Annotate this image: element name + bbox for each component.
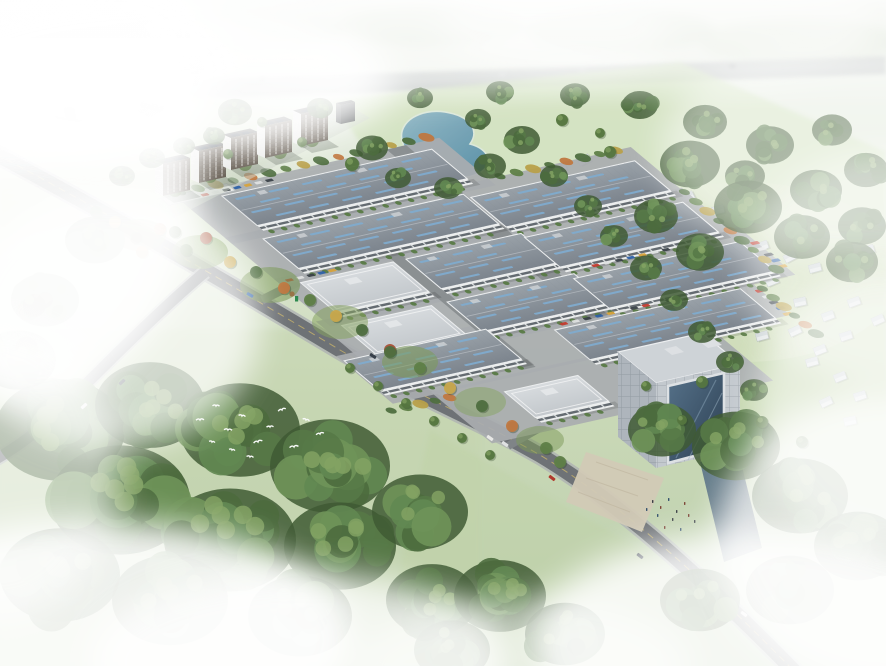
garden-lawn xyxy=(516,426,564,454)
person xyxy=(660,506,661,509)
tree-highlight xyxy=(642,382,647,387)
forest-canopy xyxy=(732,363,739,370)
canopy-highlight xyxy=(405,485,418,498)
canopy-highlight xyxy=(649,215,655,221)
person xyxy=(688,514,689,517)
canopy-highlight xyxy=(392,171,396,175)
tree-highlight xyxy=(402,399,407,404)
forest-canopy xyxy=(601,234,613,246)
tree-highlight xyxy=(346,364,351,369)
canopy-highlight xyxy=(478,118,482,122)
tree-highlight xyxy=(596,129,601,134)
canopy-highlight xyxy=(487,159,491,163)
canopy-highlight xyxy=(550,174,554,178)
forest-canopy xyxy=(647,219,662,234)
person xyxy=(680,528,681,531)
tree-highlight xyxy=(606,147,611,152)
tree-highlight xyxy=(558,115,563,120)
canopy-highlight xyxy=(487,166,491,170)
garden-tree xyxy=(540,442,552,454)
canopy-highlight xyxy=(726,357,730,361)
garden-tree xyxy=(384,346,396,358)
person xyxy=(652,500,653,503)
canopy-highlight xyxy=(315,540,331,556)
tree-highlight xyxy=(347,158,353,164)
tree xyxy=(429,416,439,426)
tree xyxy=(345,363,355,373)
person xyxy=(668,498,669,501)
top-haze-veil xyxy=(0,0,886,110)
tree-highlight xyxy=(678,416,683,421)
canopy-highlight xyxy=(752,383,756,387)
scene-svg xyxy=(0,0,886,666)
garden-tree xyxy=(476,400,488,412)
canopy-highlight xyxy=(701,327,705,331)
canopy-highlight xyxy=(446,185,450,189)
canopy-highlight xyxy=(432,491,445,504)
forest-canopy xyxy=(603,226,611,234)
tree-highlight xyxy=(458,434,463,439)
canopy-highlight xyxy=(612,232,616,236)
tree xyxy=(604,146,616,158)
canopy-highlight xyxy=(588,206,592,210)
canopy-highlight xyxy=(473,114,477,118)
canopy-highlight xyxy=(638,417,648,427)
forest-canopy xyxy=(694,333,702,341)
canopy-highlight xyxy=(659,216,665,222)
forest-canopy xyxy=(577,200,585,208)
forest-canopy xyxy=(412,507,452,547)
canopy-highlight xyxy=(234,506,252,524)
canopy-highlight xyxy=(228,428,245,445)
canopy-highlight xyxy=(348,518,364,534)
garden-tree xyxy=(278,282,290,294)
forest-canopy xyxy=(559,172,567,180)
forest-canopy xyxy=(513,134,525,146)
tree-highlight xyxy=(374,382,379,387)
aerial-rendering-industrial-park xyxy=(0,0,886,666)
person xyxy=(672,518,673,521)
tree xyxy=(595,128,605,138)
forest-canopy xyxy=(451,189,457,195)
gate-sign-green xyxy=(295,296,298,302)
forest-canopy xyxy=(525,137,534,146)
canopy-highlight xyxy=(396,174,400,178)
canopy-highlight xyxy=(519,128,524,133)
canopy-highlight xyxy=(656,421,666,431)
person xyxy=(646,508,647,511)
canopy-highlight xyxy=(370,143,374,147)
forest-canopy xyxy=(659,427,684,452)
canopy-highlight xyxy=(338,536,354,552)
garden-tree xyxy=(356,324,368,336)
canopy-highlight xyxy=(378,144,382,148)
canopy-highlight xyxy=(615,229,619,233)
canopy-highlight xyxy=(120,465,140,485)
tree-highlight xyxy=(698,377,703,382)
canopy-highlight xyxy=(728,354,732,358)
canopy-highlight xyxy=(506,587,519,600)
canopy-highlight xyxy=(642,263,646,267)
garden-tree xyxy=(414,362,426,374)
forest-canopy xyxy=(748,381,758,391)
canopy-highlight xyxy=(699,247,706,254)
person xyxy=(664,526,665,529)
canopy-highlight xyxy=(549,171,553,175)
canopy-highlight xyxy=(733,422,745,434)
garden-tree xyxy=(330,310,342,322)
canopy-highlight xyxy=(705,327,709,331)
tree xyxy=(345,157,359,171)
garden-tree xyxy=(554,456,566,468)
forest-canopy xyxy=(631,429,655,453)
canopy-highlight xyxy=(324,457,341,474)
person xyxy=(684,502,685,505)
canopy-highlight xyxy=(311,523,327,539)
person xyxy=(657,514,658,517)
tree xyxy=(641,381,651,391)
forest-canopy xyxy=(648,267,661,280)
forest-canopy xyxy=(540,171,551,182)
garden-tree xyxy=(250,266,262,278)
canopy-highlight xyxy=(518,140,523,145)
canopy-highlight xyxy=(649,263,653,267)
canopy-highlight xyxy=(304,451,321,468)
garden-tree xyxy=(304,294,316,306)
tree xyxy=(556,114,568,126)
tree xyxy=(373,381,383,391)
canopy-highlight xyxy=(590,198,594,202)
canopy-highlight xyxy=(401,507,414,520)
tree-highlight xyxy=(430,417,435,422)
canopy-highlight xyxy=(710,432,722,444)
person xyxy=(694,520,695,523)
garden-tree xyxy=(444,382,456,394)
garden-tree xyxy=(506,420,518,432)
canopy-highlight xyxy=(744,388,748,392)
tree xyxy=(696,376,708,388)
tree xyxy=(457,433,467,443)
person xyxy=(676,510,677,513)
tree-highlight xyxy=(486,451,491,456)
canopy-highlight xyxy=(354,458,371,475)
canopy-highlight xyxy=(488,582,501,595)
tree xyxy=(485,450,495,460)
forest-canopy xyxy=(742,390,752,400)
tree xyxy=(677,415,687,425)
tree xyxy=(401,398,411,408)
canopy-highlight xyxy=(672,300,676,304)
